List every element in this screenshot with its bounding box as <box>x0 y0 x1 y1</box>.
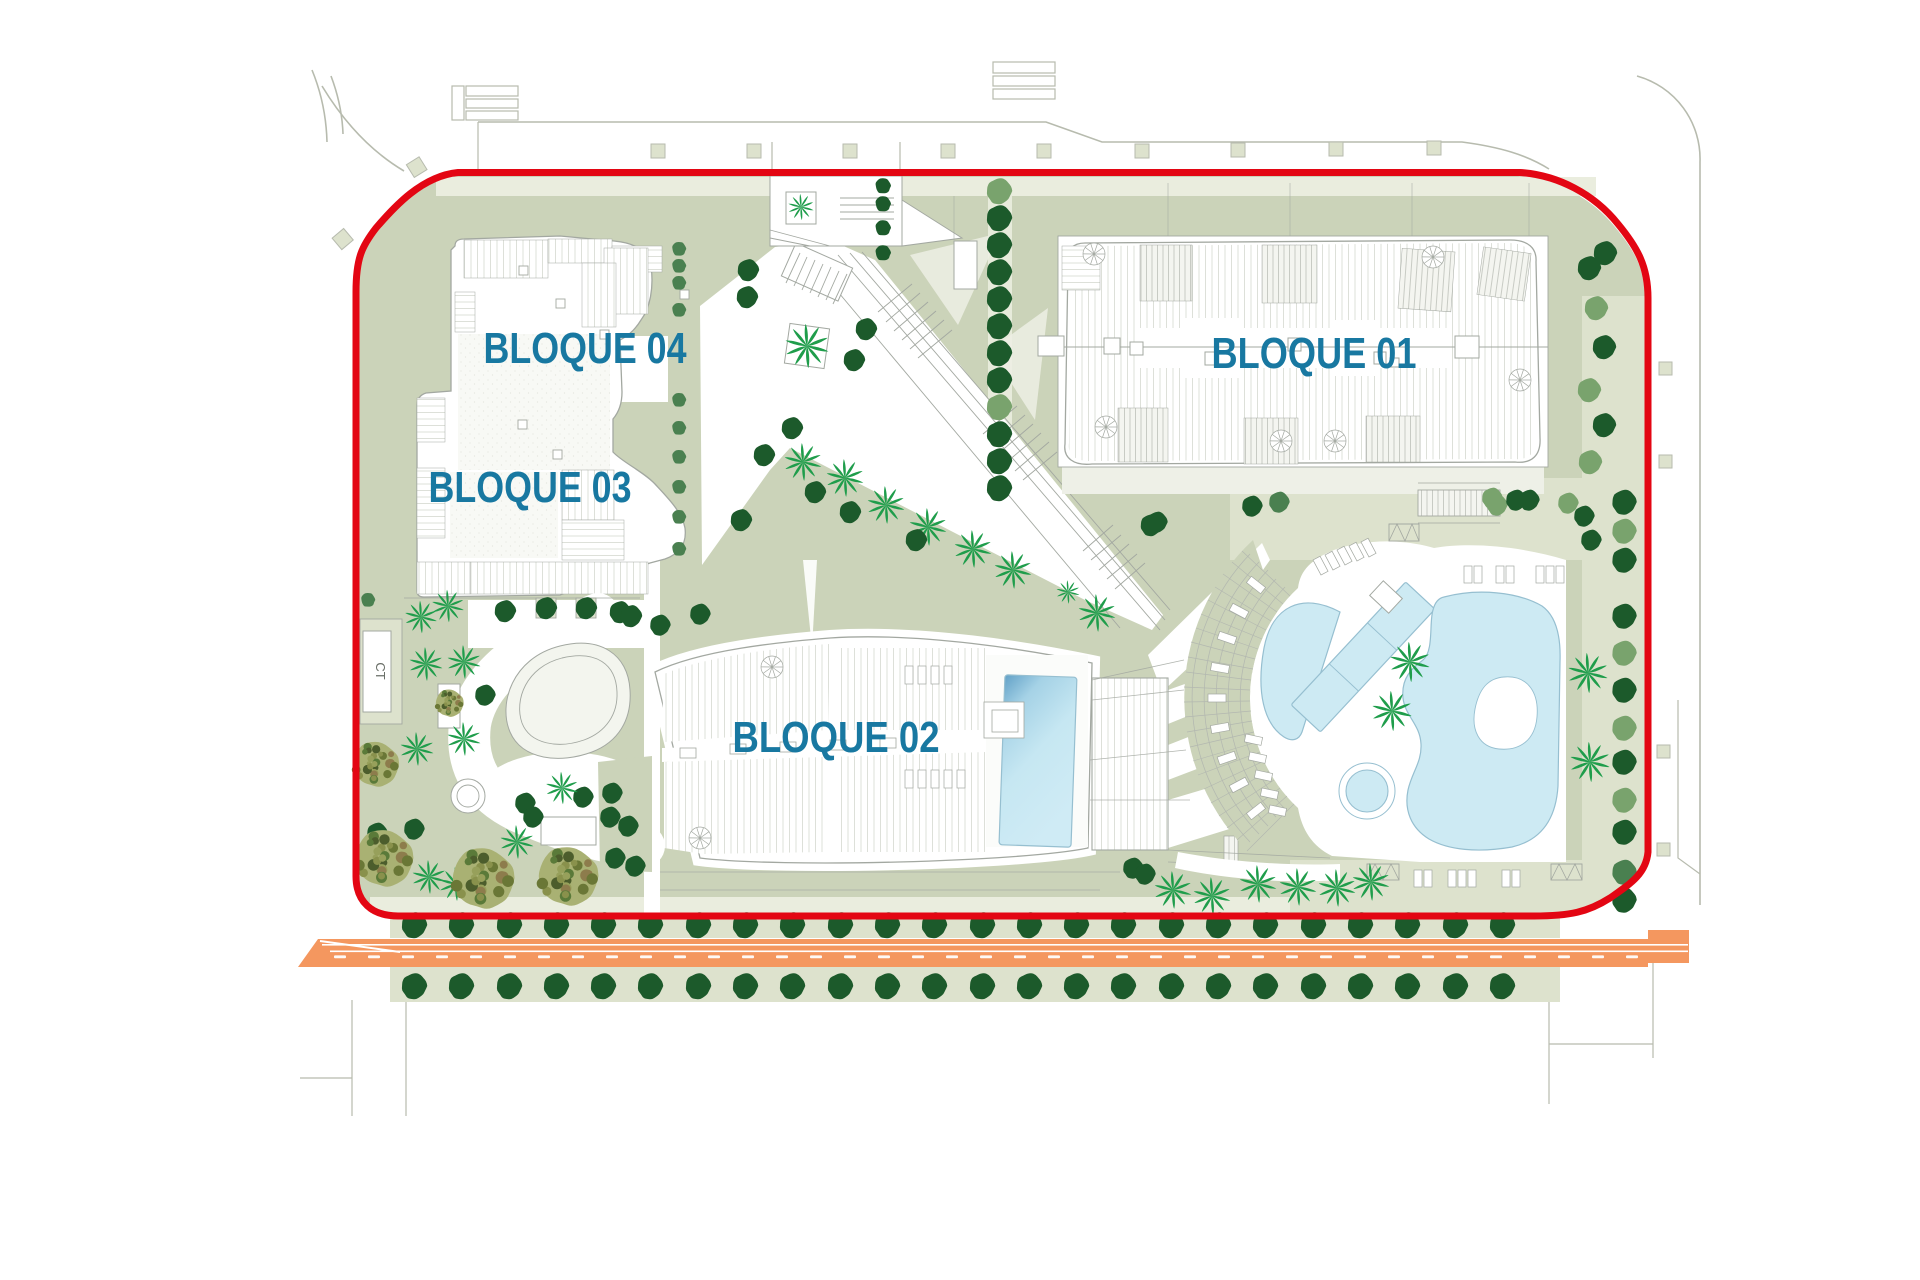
svg-text:BLOQUE 01: BLOQUE 01 <box>1212 329 1417 378</box>
svg-text:BLOQUE 04: BLOQUE 04 <box>484 324 687 373</box>
svg-text:CT: CT <box>373 662 388 679</box>
svg-text:BLOQUE 03: BLOQUE 03 <box>429 463 632 512</box>
svg-text:BLOQUE 02: BLOQUE 02 <box>733 713 940 762</box>
